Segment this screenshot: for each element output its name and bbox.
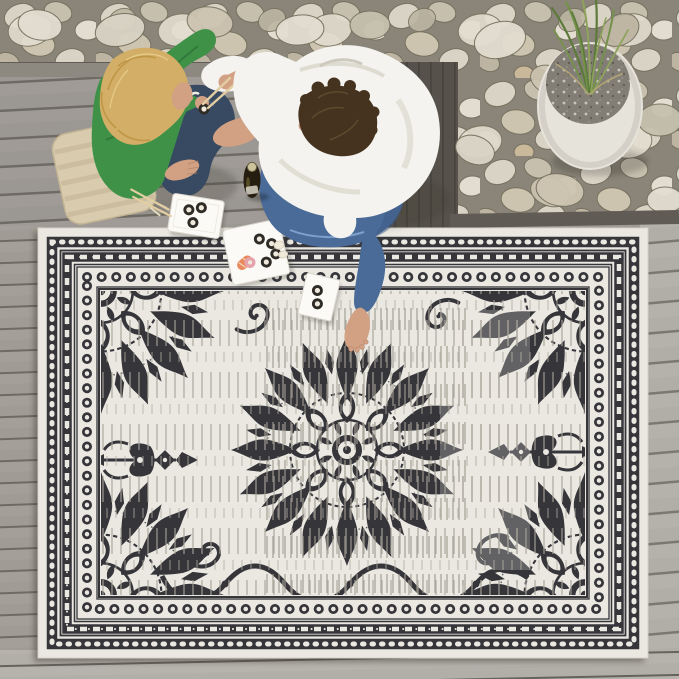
scene-canvas (0, 0, 679, 679)
bottle-cap (247, 162, 256, 171)
photo-outdoor-rug-scene (0, 0, 679, 679)
bottle-label (246, 185, 259, 195)
